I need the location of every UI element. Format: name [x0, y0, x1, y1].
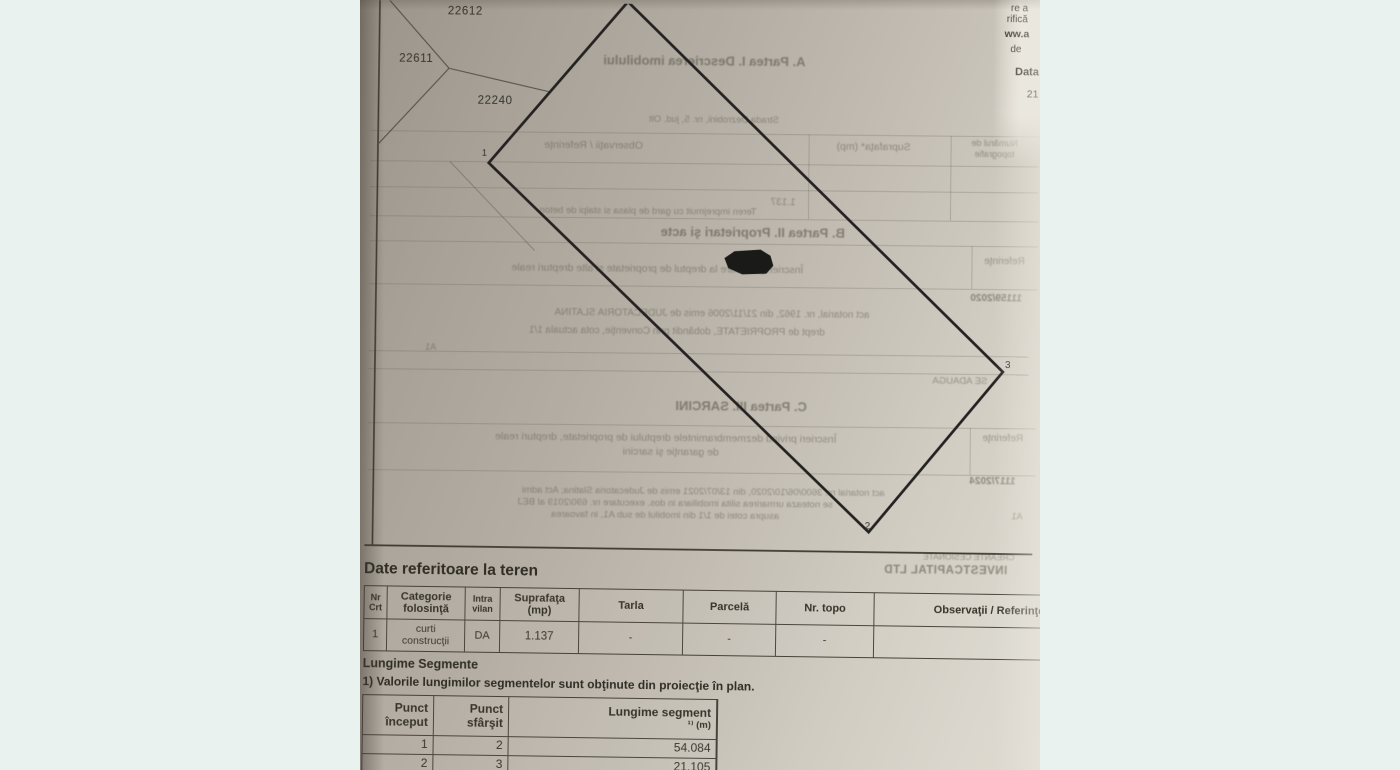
cell-value: 3 — [496, 758, 503, 770]
neighbor-parcel-lines — [377, 0, 550, 147]
edge-text: rifică — [1007, 14, 1028, 25]
col-header-parcela: Parcelă — [683, 591, 776, 625]
segment-cell-length: 21.105 — [508, 756, 716, 770]
col-header-categorie: Categoriefolosinţă — [387, 586, 465, 620]
header-line: început — [385, 715, 428, 729]
col-header-observatii: Observaţii / Referinţe — [874, 593, 1040, 629]
terrain-cell-observatii — [874, 626, 1040, 660]
terrain-table: NrCrt Categoriefolosinţă Intravilan Supr… — [363, 585, 1040, 661]
header-line: Observaţii / Referinţe — [934, 604, 1040, 618]
document-photo: A. Partea I. Descrierea imobilului Strad… — [360, 0, 1040, 770]
edge-text: re a — [1011, 3, 1028, 14]
segment-cell-end: 2 — [433, 736, 508, 756]
cell-value: - — [727, 634, 731, 646]
neighbor-parcel-line — [449, 161, 536, 250]
terrain-cell-parcela: - — [683, 624, 776, 656]
segment-cell-start: 2 — [362, 754, 433, 770]
header-line: Nr — [371, 592, 381, 602]
point-label: 2 — [865, 521, 871, 532]
col-header-tarla: Tarla — [579, 589, 683, 623]
cell-value: DA — [474, 630, 489, 643]
screenshot-root: { "colors": { "backdrop": "#e9f2ef", "pa… — [0, 0, 1400, 770]
header-line: Punct — [470, 703, 504, 717]
header-line: sfârşit — [467, 716, 503, 730]
header-line: Lungime segment — [608, 706, 711, 721]
terrain-cell-tarla: - — [579, 622, 683, 654]
header-line: Suprafaţa — [514, 592, 565, 605]
cell-value: - — [823, 635, 827, 647]
terrain-cell-categorie: curticonstrucţii — [387, 619, 465, 651]
cell-value: 2 — [421, 757, 428, 770]
col-header-nr-crt: NrCrt — [364, 586, 387, 619]
cell-value: construcţii — [402, 635, 449, 647]
segments-heading: Lungime Segmente — [363, 656, 478, 672]
edge-text: Data — [1015, 66, 1039, 78]
point-label: 3 — [1005, 360, 1011, 371]
redaction-blob — [724, 249, 773, 275]
cell-value: 1 — [421, 738, 428, 752]
plan-frame-bottom — [364, 545, 1040, 554]
col-header-punct-sfarsit: Punctsfârşit — [434, 696, 510, 737]
col-header-punct-inceput: Punctînceput — [363, 695, 435, 736]
point-label: 1 — [482, 148, 487, 158]
edge-text: ww.a — [1005, 28, 1030, 40]
terrain-cell-suprafata: 1.137 — [500, 621, 579, 653]
header-line: vilan — [472, 604, 493, 614]
header-line: Nr. topo — [804, 602, 846, 615]
header-line: Crt — [369, 602, 382, 612]
parcel-label: 22611 — [399, 53, 433, 65]
header-line: Intra — [473, 594, 493, 604]
header-line: ¹⁾ (m) — [687, 721, 710, 732]
document-sheet: A. Partea I. Descrierea imobilului Strad… — [360, 0, 1040, 770]
segments-table: Punctînceput Punctsfârşit Lungime segmen… — [361, 694, 718, 770]
cell-value: 1.137 — [525, 630, 554, 643]
header-line: folosinţă — [403, 603, 449, 616]
header-line: Parcelă — [710, 601, 749, 614]
terrain-cell-nr: 1 — [364, 619, 387, 650]
terrain-title: Date referitoare la teren — [364, 560, 538, 580]
col-header-nr-topo: Nr. topo — [776, 592, 874, 626]
terrain-cell-intravilan: DA — [465, 621, 500, 652]
col-header-suprafata: Suprafaţa(mp) — [500, 588, 579, 622]
cell-value: 1 — [372, 629, 378, 641]
terrain-cell-nr-topo: - — [776, 625, 874, 657]
col-header-intravilan: Intravilan — [465, 588, 500, 621]
header-line: Tarla — [618, 600, 644, 613]
parcel-label: 22612 — [448, 5, 483, 17]
col-header-lungime: Lungime segment¹⁾ (m) — [509, 697, 718, 740]
segment-cell-start: 1 — [362, 735, 433, 755]
segment-cell-end: 3 — [433, 755, 508, 770]
cell-value: 21.105 — [674, 760, 711, 770]
cell-value: 54.084 — [674, 742, 711, 756]
edge-text: de — [1010, 44, 1021, 55]
cell-value: 2 — [496, 739, 503, 753]
edge-text: 21 — [1027, 88, 1039, 100]
header-line: (mp) — [527, 604, 551, 617]
cell-value: curti — [416, 624, 436, 636]
parcel-label: 22240 — [478, 95, 513, 107]
header-line: Categorie — [401, 590, 452, 603]
header-line: Punct — [395, 702, 429, 716]
plan-frame-left — [372, 0, 380, 545]
cell-value: - — [629, 632, 633, 644]
